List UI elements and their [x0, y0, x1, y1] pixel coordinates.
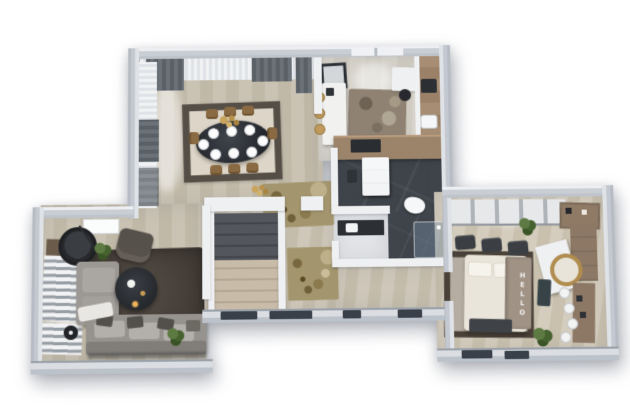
wall-dining-hall — [204, 197, 285, 212]
kitchen-sink — [420, 115, 437, 129]
pouf — [455, 234, 476, 250]
floor-plan-render: HELLO — [0, 0, 630, 420]
desk-stool — [559, 287, 571, 298]
dining-chair — [267, 127, 277, 139]
wall-living-west — [31, 207, 44, 373]
bedside-chair — [537, 279, 551, 306]
desk-tray — [576, 295, 582, 301]
sliding-wardrobe — [450, 199, 566, 226]
place-setting — [246, 147, 257, 158]
wall-dining-hall-b — [301, 196, 323, 210]
place-setting — [228, 148, 239, 159]
sofa-cushion — [82, 268, 115, 293]
desk-stool — [567, 318, 579, 329]
countertop-appliance — [421, 79, 437, 93]
curtain-drape-left-b — [137, 168, 159, 207]
bed-pillow — [468, 261, 493, 277]
kitchen-desk — [392, 67, 416, 91]
table-decor-plate — [127, 280, 135, 288]
dining-chair — [242, 106, 254, 116]
curtain-drape-left-a — [137, 120, 159, 162]
pouf — [507, 240, 529, 256]
wall-bedroom-west-a — [442, 197, 453, 272]
desk-stool — [563, 303, 575, 314]
sofa-pillow — [186, 320, 200, 332]
window-slot — [462, 350, 493, 359]
bed-blanket-text: HELLO — [511, 267, 526, 321]
window-slot — [343, 310, 361, 318]
desk-tray — [580, 312, 586, 318]
table-decor-gold — [140, 291, 145, 296]
curtain-drape-top-right — [296, 57, 312, 93]
desk-chair — [399, 89, 411, 101]
wall-wc-top — [331, 206, 390, 215]
wall-living-south — [31, 359, 213, 374]
window-slot — [398, 309, 423, 317]
dining-chair — [210, 165, 222, 175]
kitchen-window — [351, 48, 403, 56]
potted-plant — [530, 327, 555, 348]
wall-living-north — [32, 206, 133, 218]
shelf-decor — [582, 210, 587, 215]
cooktop — [351, 139, 381, 152]
wc-counter — [338, 220, 385, 236]
wall-bath-left-a — [331, 148, 339, 211]
staircase-upper-treads — [214, 213, 278, 260]
window-slot — [221, 311, 258, 320]
dining-chandelier — [216, 113, 242, 131]
sofa-pillow — [126, 316, 143, 329]
dining-chair — [189, 132, 199, 144]
window-slot — [269, 311, 312, 320]
stair-wall-right — [278, 207, 286, 319]
wall-bedroom-north — [442, 185, 614, 198]
dining-chair — [246, 163, 258, 173]
potted-plant — [93, 241, 113, 262]
shower-head — [437, 225, 441, 229]
bar-stool — [314, 124, 325, 135]
sofa-shadow-line — [88, 352, 206, 359]
desk-stool — [560, 332, 572, 343]
apartment-building: HELLO — [0, 0, 630, 420]
potted-plant — [166, 326, 186, 347]
dining-chair — [228, 164, 240, 174]
candle-glow — [131, 300, 139, 308]
window-slot — [504, 351, 529, 360]
place-setting — [198, 139, 209, 150]
place-setting — [244, 125, 255, 136]
shelf-decor — [565, 208, 571, 214]
potted-plant — [517, 216, 538, 237]
wc-sink — [346, 223, 358, 232]
wall-west-dining — [127, 48, 139, 218]
hallway-floor-lower — [335, 264, 452, 310]
wall-kitchen-dining — [314, 48, 323, 114]
kitchen-rug — [348, 89, 407, 138]
bath-vanity — [362, 157, 390, 196]
pouf — [481, 237, 502, 253]
side-table-cup — [69, 331, 73, 335]
coffee-machine — [326, 88, 334, 96]
wall-living-hall — [202, 205, 210, 299]
place-setting — [210, 149, 221, 160]
wall-east-kitchen — [439, 45, 453, 197]
vanity-stool — [347, 170, 357, 183]
curtain-drape-top-mid — [252, 58, 292, 82]
bed-foot-bench — [469, 318, 512, 332]
wall-bath-bottom — [333, 258, 448, 267]
